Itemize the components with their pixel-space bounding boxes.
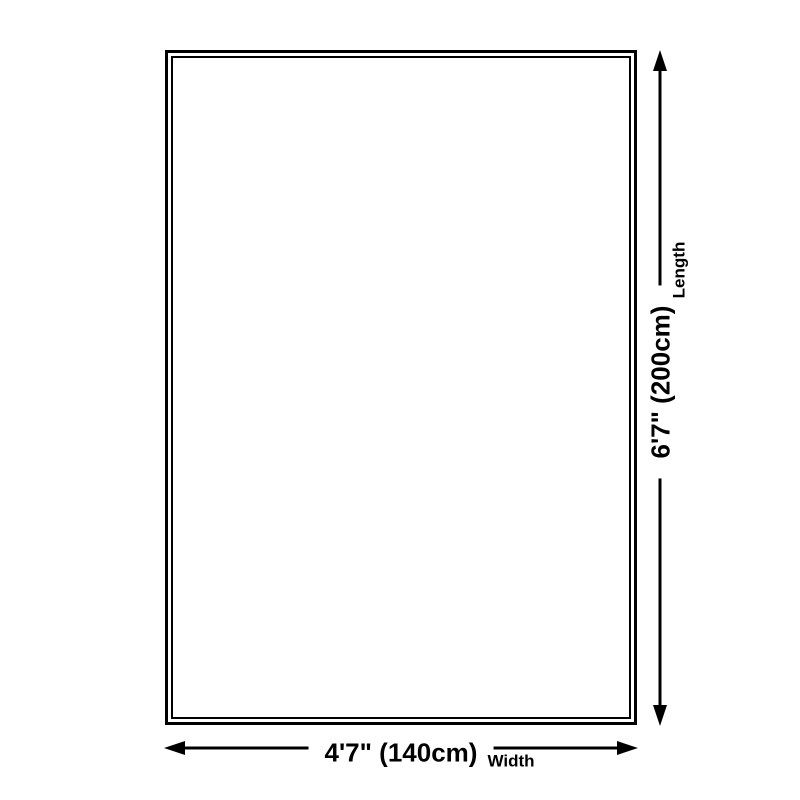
rug-outline: [165, 50, 637, 725]
length-caption: Length: [671, 242, 690, 299]
rug-inner-outline: [171, 56, 631, 719]
width-dimension-value: 4'7" (140cm): [309, 737, 494, 770]
arrow-up-icon: [653, 50, 667, 71]
arrow-down-icon: [653, 705, 667, 726]
arrow-right-icon: [617, 741, 638, 755]
width-caption: Width: [487, 753, 534, 772]
length-dimension-value: 6'7" (200cm): [645, 286, 678, 479]
size-diagram: 6'7" (200cm) Length 4'7" (140cm) Width: [0, 0, 800, 800]
arrow-left-icon: [164, 741, 185, 755]
